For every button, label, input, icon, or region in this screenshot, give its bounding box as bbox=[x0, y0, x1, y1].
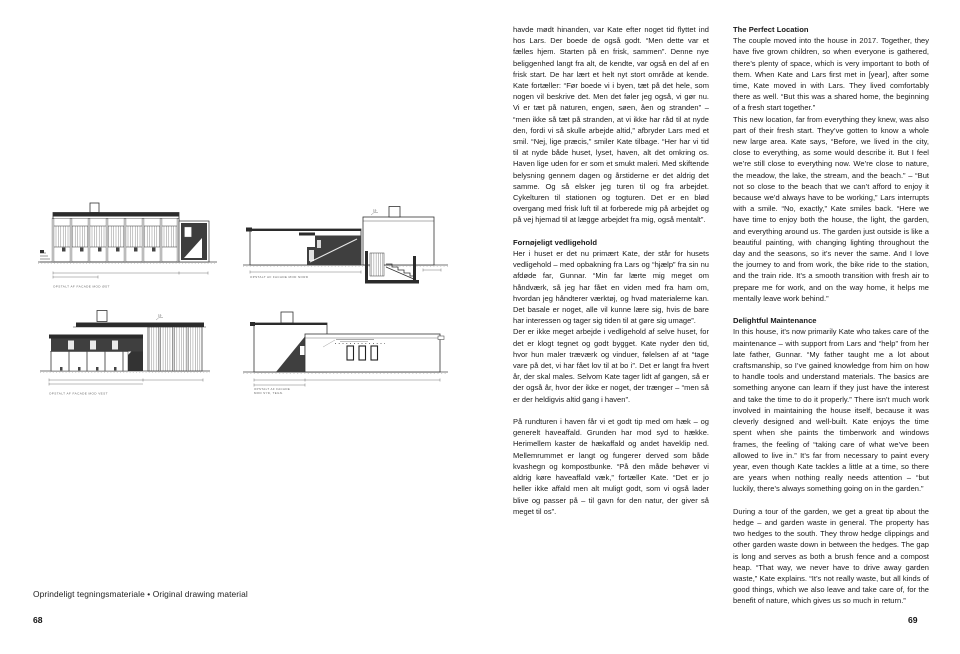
drawing-c-level-mark: 19 bbox=[158, 314, 162, 318]
danish-heading-maintenance: Fornøjeligt vedligehold bbox=[513, 237, 709, 248]
english-paragraph-4: During a tour of the garden, we get a gr… bbox=[733, 506, 929, 607]
page-number-left: 68 bbox=[33, 615, 43, 625]
drawing-a-caption: OPSTALT AF FACADE MOD ØST bbox=[53, 285, 110, 289]
drawing-c-caption: OPSTALT AF FACADE MOD VEST bbox=[49, 392, 108, 396]
elevation-drawing-west: 19 bbox=[40, 308, 210, 403]
danish-text-column: havde mødt hinanden, var Kate efter noge… bbox=[513, 24, 709, 517]
danish-paragraph-1: havde mødt hinanden, var Kate efter noge… bbox=[513, 24, 709, 226]
elevation-drawing-north: 19 OPSTALT AF FACADE MOD NORD bbox=[243, 198, 448, 298]
english-paragraph-3: In this house, it’s now primarily Kate w… bbox=[733, 326, 929, 494]
danish-paragraph-4: På rundturen i haven får vi et godt tip … bbox=[513, 416, 709, 517]
danish-paragraph-2: Her i huset er det nu primært Kate, der … bbox=[513, 248, 709, 326]
english-heading-maintenance: Delightful Maintenance bbox=[733, 315, 929, 326]
danish-paragraph-3: Der er ikke meget arbejde i vedligehold … bbox=[513, 326, 709, 404]
drawing-b-caption: OPSTALT AF FACADE MOD NORD bbox=[250, 275, 309, 279]
elevation-drawing-south: OPSTALT AF FACADE MOD SYD, TEGN. bbox=[243, 310, 448, 402]
english-text-column: The Perfect Location The couple moved in… bbox=[733, 24, 929, 607]
elevation-drawing-east: OPSTALT AF FACADE MOD ØST bbox=[38, 200, 220, 295]
english-heading-location: The Perfect Location bbox=[733, 24, 929, 35]
drawing-d-caption-line2: MOD SYD, TEGN. bbox=[254, 391, 283, 395]
english-paragraph-2: This new location, far from everything t… bbox=[733, 114, 929, 304]
plate-caption: Oprindeligt tegningsmateriale • Original… bbox=[33, 589, 248, 599]
page-number-right: 69 bbox=[908, 615, 918, 625]
english-paragraph-1: The couple moved into the house in 2017.… bbox=[733, 35, 929, 113]
drawing-b-level-mark: 19 bbox=[373, 209, 377, 213]
book-spread: OPSTALT AF FACADE MOD ØST bbox=[0, 0, 960, 654]
